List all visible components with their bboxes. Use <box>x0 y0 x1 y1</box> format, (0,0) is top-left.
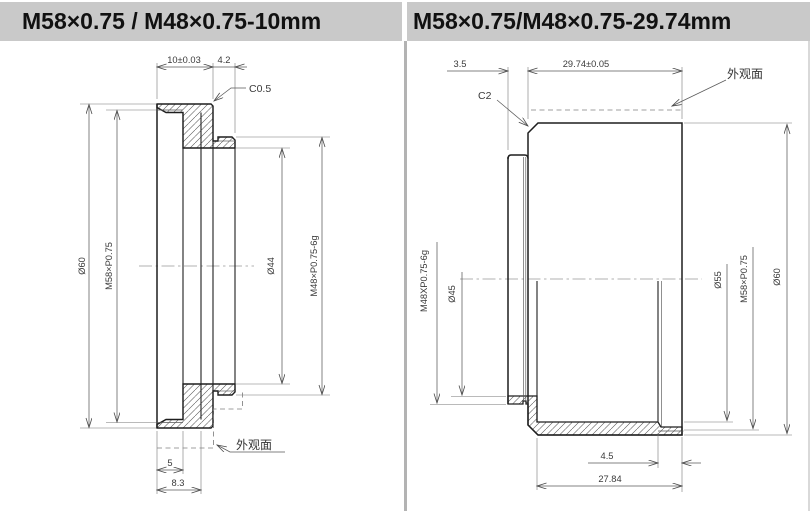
dim-thread-depth-right: 4.5 <box>601 451 614 461</box>
surface-note-right: 外观面 <box>727 67 763 81</box>
dim-thread-internal-right: M58×P0.75 <box>739 255 749 303</box>
dim-outer-dia-right: Ø60 <box>772 268 782 286</box>
surface-note-left: 外观面 <box>236 438 272 452</box>
dim-bore-large: Ø55 <box>713 271 723 289</box>
dim-thread-depth: 5 <box>167 458 172 468</box>
dim-bore: Ø44 <box>266 257 276 275</box>
dim-chamfer: C0.5 <box>249 83 271 95</box>
dim-outer-dia: Ø60 <box>77 257 87 275</box>
dim-stub-len: 3.5 <box>454 59 467 69</box>
dim-bore-small: Ø45 <box>447 285 457 303</box>
dim-body-len: 29.74±0.05 <box>563 59 609 69</box>
right-drawing: 3.5 29.74±0.05 C2 M48XP0.75-6g Ø45 Ø55 M… <box>407 0 810 511</box>
dim-thread-external: M48×P0.75-6g <box>309 235 319 296</box>
dim-chamfer-right: C2 <box>478 90 492 102</box>
right-appearance-surface: 外观面 <box>531 67 763 110</box>
drawing-sheet: M58×0.75 / M48×0.75-10mm M58×0.75/M48×0.… <box>0 0 810 511</box>
left-drawing: 10±0.03 4.2 C0.5 Ø60 M58×P0.75 Ø44 <box>0 0 402 511</box>
dim-flange-width: 10±0.03 <box>167 55 201 65</box>
dim-stub-width: 4.2 <box>218 55 231 65</box>
dim-thread-internal: M58×P0.75 <box>104 242 114 290</box>
dim-cavity-depth: 27.84 <box>598 474 621 484</box>
dim-thread-external-right: M48XP0.75-6g <box>419 250 429 312</box>
dim-runout-depth: 8.3 <box>172 478 185 488</box>
